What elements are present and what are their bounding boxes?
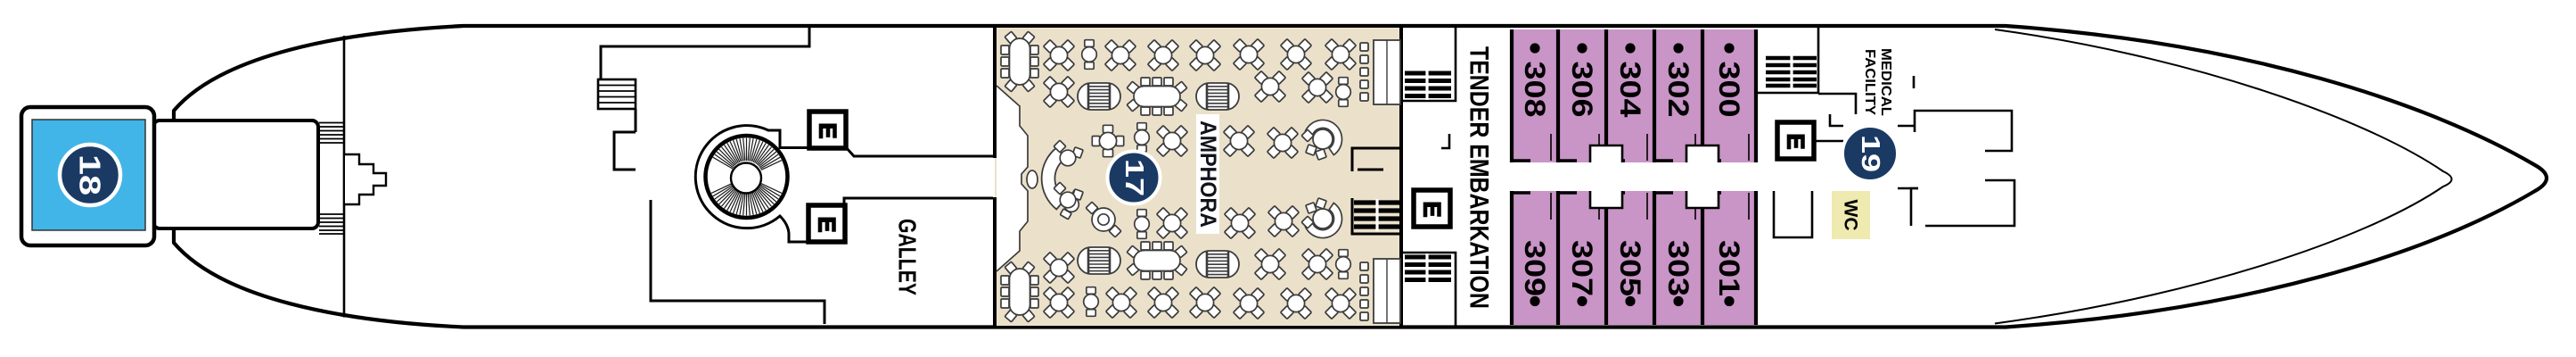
svg-text:17: 17 (1120, 159, 1148, 196)
svg-text:AMPHORA: AMPHORA (1195, 120, 1220, 228)
svg-text:300: 300 (1713, 62, 1745, 118)
svg-text:19: 19 (1856, 135, 1884, 172)
svg-text:18: 18 (74, 154, 107, 195)
svg-text:306: 306 (1566, 62, 1598, 118)
svg-text:309: 309 (1519, 240, 1551, 296)
svg-text:302: 302 (1662, 62, 1694, 118)
svg-text:308: 308 (1519, 62, 1551, 118)
svg-text:301: 301 (1713, 240, 1745, 296)
svg-text:304: 304 (1614, 62, 1646, 118)
svg-text:GALLEY: GALLEY (894, 219, 922, 295)
svg-text:WC: WC (1841, 200, 1861, 231)
svg-text:305: 305 (1614, 240, 1646, 296)
svg-text:MEDICALFACILITY: MEDICALFACILITY (1862, 48, 1893, 116)
svg-text:303: 303 (1662, 240, 1694, 296)
svg-text:307: 307 (1566, 240, 1598, 296)
svg-text:TENDER EMBARKATION: TENDER EMBARKATION (1464, 46, 1494, 309)
